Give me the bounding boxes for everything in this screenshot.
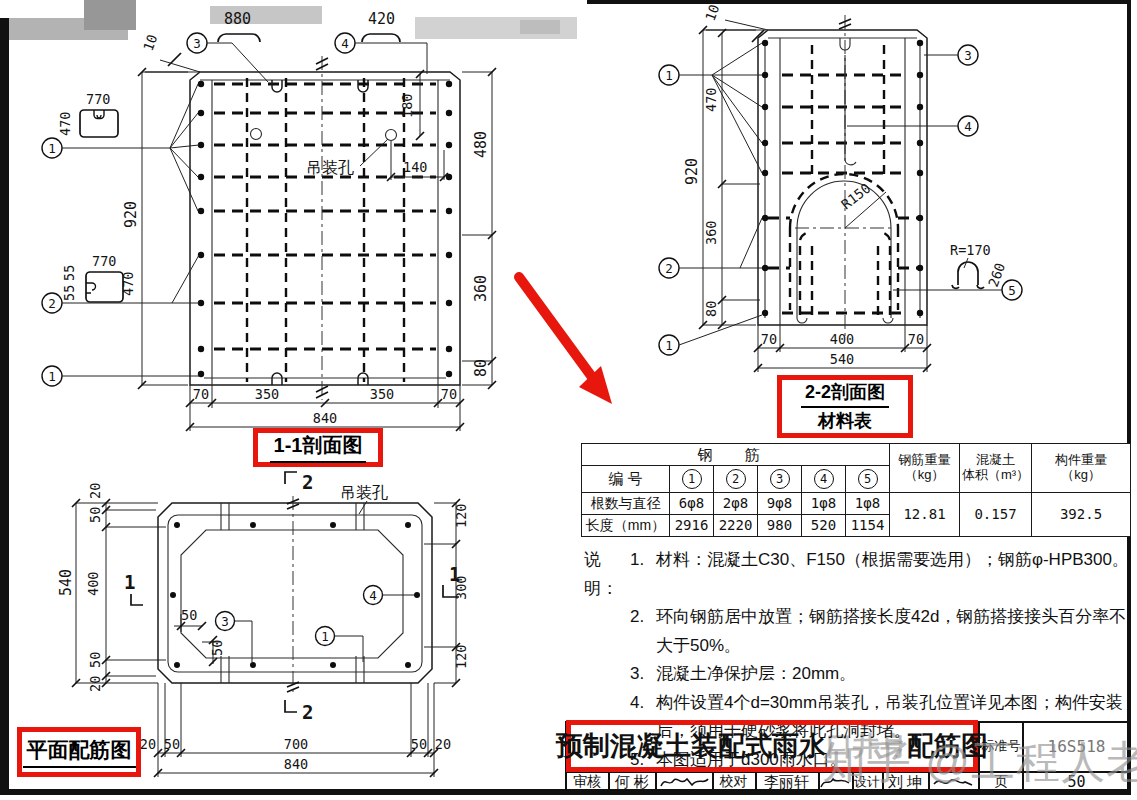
dim-label: 470 <box>703 88 719 112</box>
callout-1-label: 1 <box>665 68 673 83</box>
plan-title: 平面配筋图 <box>23 736 136 768</box>
note-item: 3. 混凝土净保护层：20mm。 <box>584 660 1129 689</box>
name-checker: 李丽轩 <box>755 772 818 792</box>
callout-1-label: 1 <box>321 629 329 644</box>
dim-label: 55 <box>61 265 77 281</box>
note-text: 环向钢筋居中放置；钢筋搭接长度42d，钢筋搭接接头百分率不大于50%。 <box>656 603 1129 660</box>
dim-label: 300 <box>453 576 469 600</box>
rebar-5-symbol: R=170 260 <box>950 242 1008 289</box>
section-2-2-view: R150 1 2 1 3 4 5 R=170 <box>659 2 1022 372</box>
row-header-count: 根数与直径 <box>582 493 670 515</box>
callout-4-label: 4 <box>341 36 349 51</box>
watermark: 知乎 @工程人老刘 <box>822 733 1137 792</box>
lifting-hole-label: 吊装孔 <box>306 159 354 176</box>
dim-label: 470 <box>120 272 136 296</box>
callout-4-label: 4 <box>964 119 972 134</box>
name-reviewer: 何 彬 <box>608 772 655 792</box>
dim-label: 350 <box>255 386 279 402</box>
dim-label: 10 <box>702 2 723 23</box>
dim-label: 50 <box>181 607 197 623</box>
note-text: 材料：混凝土C30、F150（根据需要选用）；钢筋φ-HPB300。 <box>656 546 1129 603</box>
dim-label: 540 <box>57 569 75 596</box>
dim-label: 840 <box>284 756 308 772</box>
cell-length: 2220 <box>714 515 758 537</box>
drawing-title-prefix: 预制混凝土装配式雨水 <box>556 731 826 761</box>
dim-label: 80 <box>703 301 719 317</box>
dim-label: 400 <box>830 331 854 347</box>
dim-label: 420 <box>368 10 395 28</box>
cell-length: 2916 <box>670 515 714 537</box>
dim-label: 400 <box>85 572 101 596</box>
lifting-hole <box>386 130 397 141</box>
callout-5-label: 5 <box>1008 283 1016 298</box>
bar-id-5: 5 <box>846 466 890 493</box>
signature-reviewer <box>655 772 712 792</box>
note-item: 说明： 1. 材料：混凝土C30、F150（根据需要选用）；钢筋φ-HPB300… <box>584 546 1129 603</box>
dim-label: 70 <box>761 331 777 347</box>
role-checker: 校对 <box>712 772 755 792</box>
circled-number: 1 <box>682 469 702 489</box>
dim-label: 120 <box>453 645 469 669</box>
col-header-line: 构件重量 <box>1032 453 1130 468</box>
cell-count: 2φ8 <box>714 493 758 515</box>
dim-label: 140 <box>403 159 427 175</box>
rebar-2-symbol: 770 55 55 470 <box>61 253 136 302</box>
label-plan: 平面配筋图 <box>17 727 141 777</box>
dim-label: 180 <box>399 94 415 118</box>
bar-id-4: 4 <box>802 466 846 493</box>
label-section-1-1: 1-1剖面图 <box>253 428 383 467</box>
rebar-1-symbol: 770 470 <box>57 91 118 137</box>
callout-1b-label: 1 <box>48 369 56 384</box>
dim-label: 70 <box>441 386 457 402</box>
dim-label: 120 <box>453 504 469 528</box>
rebar-4-symbol: 420 <box>362 10 400 42</box>
section-1-1-title: 1-1剖面图 <box>270 432 367 463</box>
callout-4-label: 4 <box>369 588 377 603</box>
dim-label: 360 <box>703 221 719 245</box>
section-1-1-view: 吊装孔 140 180 880 420 3 4 <box>42 10 496 431</box>
note-item: 2. 环向钢筋居中放置；钢筋搭接长度42d，钢筋搭接接头百分率不大于50%。 <box>584 603 1129 660</box>
bar-id-1: 1 <box>670 466 714 493</box>
callout-3-label: 3 <box>221 614 229 629</box>
dim-label: 70 <box>193 386 209 402</box>
value-concrete-volume: 0.157 <box>960 493 1032 537</box>
dim-label: 20 <box>87 483 103 499</box>
cell-length: 980 <box>758 515 802 537</box>
dim-label: 540 <box>830 351 854 367</box>
lifting-hole-label: 吊装孔 <box>340 484 388 501</box>
dim-label: 70 <box>908 331 924 347</box>
callout-1-label: 1 <box>48 141 56 156</box>
row-header-id: 编 号 <box>582 466 670 493</box>
red-arrow <box>519 277 612 404</box>
role-reviewer: 审核 <box>566 772 608 792</box>
dim-label: 55 <box>61 285 77 301</box>
circled-number: 5 <box>858 469 878 489</box>
callout-2-label: 2 <box>48 296 56 311</box>
section-2-2-title: 2-2剖面图 <box>801 380 889 408</box>
callout-3-label: 3 <box>193 36 201 51</box>
dim-label: 350 <box>370 386 394 402</box>
dim-label: 20 <box>87 676 103 692</box>
section-2-marker: 2 <box>302 701 313 723</box>
dim-label: 880 <box>224 10 251 28</box>
note-text: 混凝土净保护层：20mm。 <box>656 660 1129 689</box>
callout-2-label: 2 <box>665 261 673 276</box>
cell-count: 1φ8 <box>846 493 890 515</box>
label-section-2-2: 2-2剖面图 材料表 <box>777 375 913 438</box>
note-number: 2. <box>630 603 656 660</box>
col-header-line: 混凝土 <box>960 453 1031 468</box>
rebar-dots <box>198 81 452 377</box>
section-1-marker: 1 <box>124 571 135 593</box>
dim-label: 80 <box>472 359 490 377</box>
callout-3-label: 3 <box>964 48 972 63</box>
dim-label: 920 <box>683 158 701 185</box>
lifting-hole <box>251 129 262 140</box>
col-header-concrete-volume: 混凝土 体积（m³） <box>960 444 1032 493</box>
cell-length: 1154 <box>846 515 890 537</box>
circled-number: 2 <box>726 469 746 489</box>
col-header-member-weight: 构件重量 （kg） <box>1032 444 1131 493</box>
row-header-length: 长度（mm） <box>582 515 670 537</box>
circled-number: 3 <box>770 469 790 489</box>
dim-label: 480 <box>472 131 490 158</box>
dim-label: 50 <box>87 652 103 668</box>
rebar-3-symbol: 880 <box>218 10 260 42</box>
col-header-line: 体积（m³） <box>960 468 1031 483</box>
dim-label: 20 <box>140 736 156 752</box>
dim-label: 840 <box>313 410 337 426</box>
note-number: 1. <box>630 546 656 603</box>
dim-label: 920 <box>122 201 140 228</box>
value-member-weight: 392.5 <box>1032 493 1131 537</box>
circled-number: 4 <box>814 469 834 489</box>
value-rebar-weight: 12.81 <box>890 493 960 537</box>
dim-label: 50 <box>411 736 427 752</box>
dim-label: 20 <box>435 736 451 752</box>
dim-label: 360 <box>472 275 490 302</box>
notes-label: 说明： <box>584 546 630 603</box>
col-header-line: （kg） <box>1032 468 1130 483</box>
bar-id-3: 3 <box>758 466 802 493</box>
dim-label: 50 <box>87 507 103 523</box>
col-header-line: 钢筋重量 <box>890 453 959 468</box>
signature-scribble <box>658 774 710 790</box>
callout-1b-label: 1 <box>665 338 673 353</box>
dim-label: R=170 <box>950 242 991 258</box>
material-table: 钢 筋 钢筋重量 （kg） 混凝土 体积（m³） 构件重量 （kg） 编 号 1… <box>581 443 1131 537</box>
cell-count: 9φ8 <box>758 493 802 515</box>
dim-label: 770 <box>92 253 116 269</box>
col-header-rebar-weight: 钢筋重量 （kg） <box>890 444 960 493</box>
section-2-marker: 2 <box>302 471 313 493</box>
dim-label: 10 <box>140 32 161 53</box>
material-table-title: 材料表 <box>818 409 872 433</box>
cell-count: 1φ8 <box>802 493 846 515</box>
cell-count: 6φ8 <box>670 493 714 515</box>
dim-label: 50 <box>164 736 180 752</box>
dim-label: 700 <box>284 736 308 752</box>
drawing-sheet: 吊装孔 140 180 880 420 3 4 <box>0 0 1137 800</box>
cell-length: 520 <box>802 515 846 537</box>
col-header-line: （kg） <box>890 468 959 483</box>
note-number: 3. <box>630 660 656 689</box>
bar-id-2: 2 <box>714 466 758 493</box>
dim-label: 770 <box>86 91 110 107</box>
dim-label: 470 <box>57 112 73 136</box>
table-header-rebar: 钢 筋 <box>582 444 890 466</box>
